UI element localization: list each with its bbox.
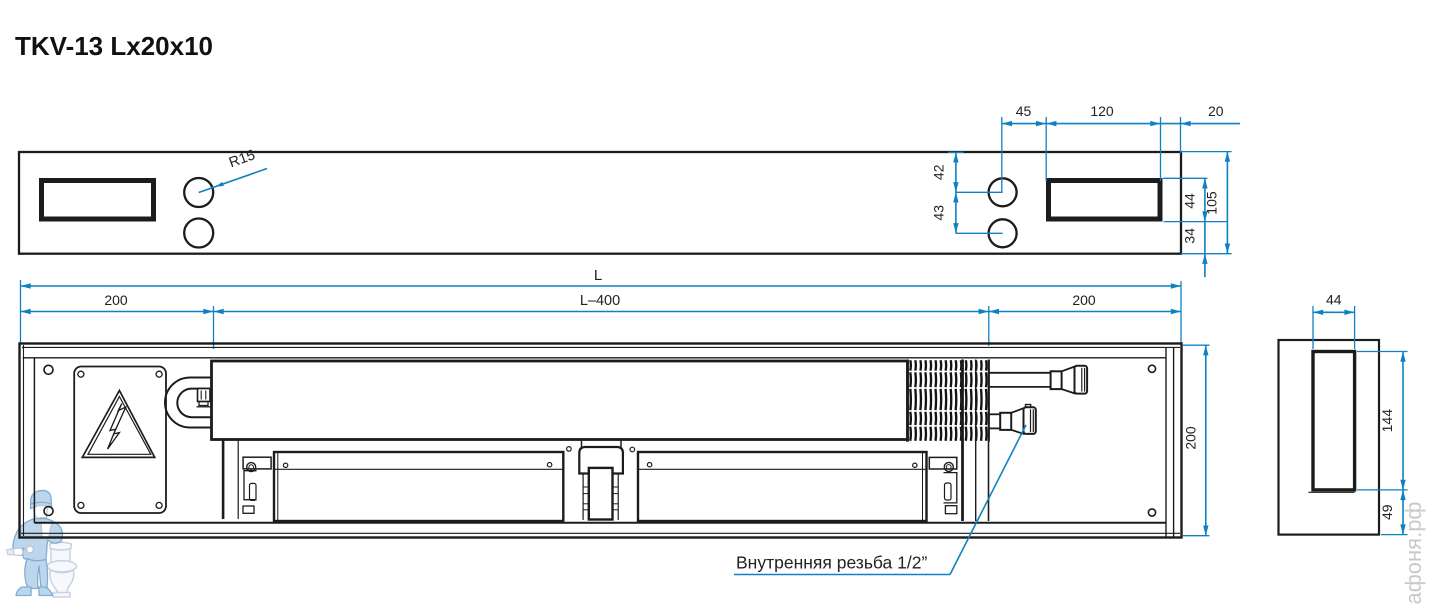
svg-text:афоня.рф: афоня.рф — [1401, 501, 1426, 604]
svg-text:43: 43 — [931, 205, 947, 221]
svg-text:44: 44 — [1326, 292, 1342, 308]
svg-text:49: 49 — [1379, 504, 1395, 520]
svg-text:L–400: L–400 — [580, 293, 620, 309]
svg-text:44: 44 — [1182, 193, 1198, 209]
svg-text:105: 105 — [1204, 191, 1220, 215]
svg-text:200: 200 — [1072, 292, 1096, 308]
svg-text:120: 120 — [1090, 103, 1114, 119]
svg-text:42: 42 — [931, 164, 947, 180]
svg-text:L: L — [594, 267, 602, 284]
svg-text:TKV-13 Lx20x10: TKV-13 Lx20x10 — [15, 31, 213, 61]
svg-text:200: 200 — [104, 292, 128, 308]
svg-text:200: 200 — [1182, 426, 1198, 450]
svg-text:144: 144 — [1379, 409, 1395, 433]
svg-text:34: 34 — [1182, 228, 1198, 244]
svg-text:20: 20 — [1208, 103, 1224, 119]
svg-text:45: 45 — [1016, 103, 1032, 119]
svg-text:Внутренняя резьба 1/2”: Внутренняя резьба 1/2” — [736, 553, 927, 573]
